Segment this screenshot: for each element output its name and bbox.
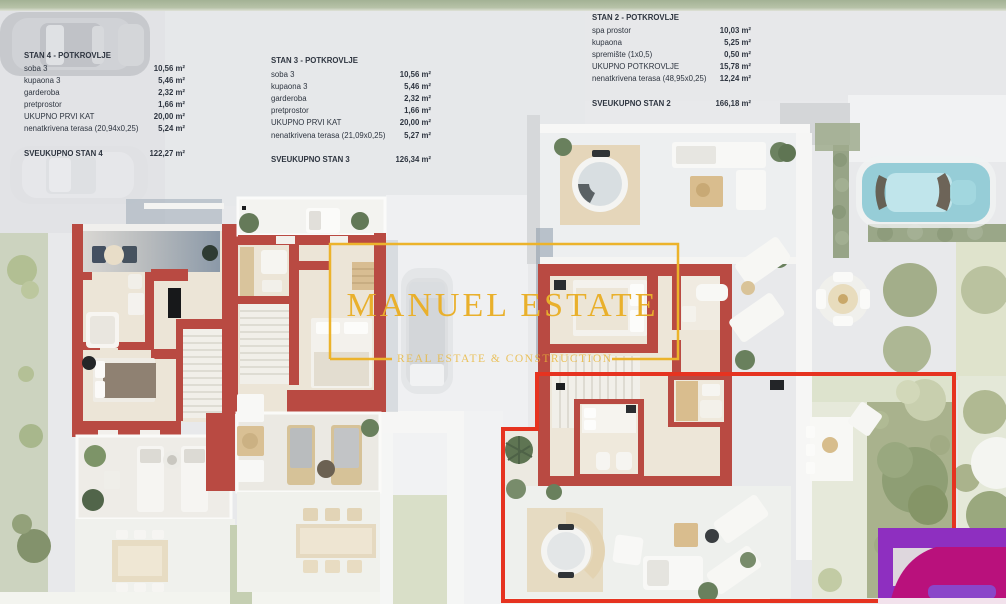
svg-text:STAN 4 - POTKROVLJE: STAN 4 - POTKROVLJE bbox=[24, 51, 111, 60]
svg-text:5,24 m²: 5,24 m² bbox=[158, 124, 185, 133]
svg-text:166,18 m²: 166,18 m² bbox=[715, 99, 751, 108]
svg-text:kupaona 3: kupaona 3 bbox=[271, 82, 307, 91]
svg-text:UKUPNO POTKROVLJE: UKUPNO POTKROVLJE bbox=[592, 62, 679, 71]
svg-text:0,50 m²: 0,50 m² bbox=[724, 50, 751, 59]
svg-text:STAN 3 - POTKROVLJE: STAN 3 - POTKROVLJE bbox=[271, 56, 358, 65]
svg-text:SVEUKUPNO STAN 2: SVEUKUPNO STAN 2 bbox=[592, 99, 671, 108]
svg-text:soba 3: soba 3 bbox=[24, 64, 47, 73]
svg-text:5,25 m²: 5,25 m² bbox=[724, 38, 751, 47]
svg-text:garderoba: garderoba bbox=[24, 88, 60, 97]
svg-text:12,24 m²: 12,24 m² bbox=[720, 74, 752, 83]
svg-text:spa prostor: spa prostor bbox=[592, 26, 631, 35]
svg-text:MANUEL ESTATE: MANUEL ESTATE bbox=[347, 287, 662, 324]
svg-text:126,34 m²: 126,34 m² bbox=[395, 155, 431, 164]
svg-text:nenatkrivena terasa (21,09x0,: nenatkrivena terasa (21,09x0,25) bbox=[271, 131, 386, 140]
svg-text:5,27 m²: 5,27 m² bbox=[404, 131, 431, 140]
svg-text:1,66 m²: 1,66 m² bbox=[158, 100, 185, 109]
svg-text:nenatkrivena terasa (20,94x0,: nenatkrivena terasa (20,94x0,25) bbox=[24, 124, 139, 133]
svg-text:2,32 m²: 2,32 m² bbox=[404, 94, 431, 103]
svg-text:5,46 m²: 5,46 m² bbox=[158, 76, 185, 85]
svg-text:122,27 m²: 122,27 m² bbox=[149, 149, 185, 158]
svg-text:UKUPNO PRVI KAT: UKUPNO PRVI KAT bbox=[24, 112, 95, 121]
svg-text:20,00 m²: 20,00 m² bbox=[400, 118, 432, 127]
svg-text:SVEUKUPNO STAN 4: SVEUKUPNO STAN 4 bbox=[24, 149, 103, 158]
svg-text:soba 3: soba 3 bbox=[271, 70, 294, 79]
svg-text:15,78 m²: 15,78 m² bbox=[720, 62, 752, 71]
svg-text:SVEUKUPNO STAN 3: SVEUKUPNO STAN 3 bbox=[271, 155, 350, 164]
svg-text:kupaona: kupaona bbox=[592, 38, 623, 47]
svg-text:1,66 m²: 1,66 m² bbox=[404, 106, 431, 115]
svg-text:10,56 m²: 10,56 m² bbox=[154, 64, 186, 73]
svg-text:10,03 m²: 10,03 m² bbox=[720, 26, 752, 35]
svg-text:2,32 m²: 2,32 m² bbox=[158, 88, 185, 97]
svg-text:pretprostor: pretprostor bbox=[24, 100, 62, 109]
svg-text:UKUPNO PRVI KAT: UKUPNO PRVI KAT bbox=[271, 118, 342, 127]
svg-text:spremište (1x0,5): spremište (1x0,5) bbox=[592, 50, 653, 59]
svg-text:10,56 m²: 10,56 m² bbox=[400, 70, 432, 79]
svg-text:garderoba: garderoba bbox=[271, 94, 307, 103]
svg-text:kupaona 3: kupaona 3 bbox=[24, 76, 60, 85]
svg-text:STAN 2 - POTKROVLJE: STAN 2 - POTKROVLJE bbox=[592, 13, 679, 22]
svg-text:20,00 m²: 20,00 m² bbox=[154, 112, 186, 121]
svg-text:nenatkrivena terasa (48,95x0,: nenatkrivena terasa (48,95x0,25) bbox=[592, 74, 707, 83]
svg-text:pretprostor: pretprostor bbox=[271, 106, 309, 115]
svg-text:5,46 m²: 5,46 m² bbox=[404, 82, 431, 91]
